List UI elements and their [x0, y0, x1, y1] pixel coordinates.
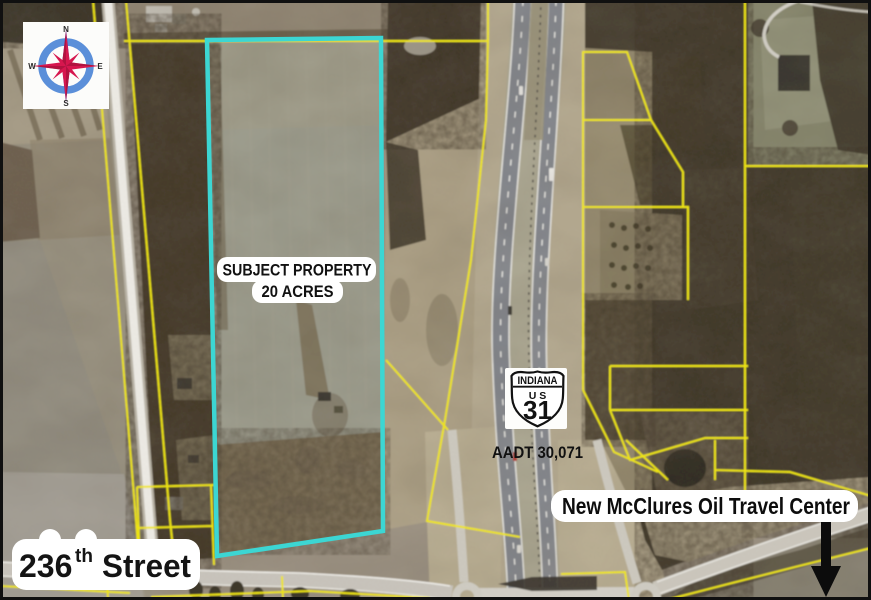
- svg-text:N: N: [63, 25, 69, 34]
- svg-text:20 ACRES: 20 ACRES: [262, 282, 334, 301]
- svg-text:31: 31: [523, 395, 552, 425]
- svg-text:New McClures Oil Travel Center: New McClures Oil Travel Center: [562, 493, 850, 519]
- svg-text:S: S: [63, 99, 69, 108]
- svg-text:INDIANA: INDIANA: [518, 375, 558, 387]
- svg-text:W: W: [28, 62, 36, 71]
- svg-text:E: E: [97, 62, 103, 71]
- svg-text:236: 236: [19, 548, 72, 584]
- svg-text:SUBJECT PROPERTY: SUBJECT PROPERTY: [223, 261, 373, 280]
- svg-text:AADT 30,071: AADT 30,071: [492, 443, 583, 462]
- svg-text:th: th: [75, 546, 93, 567]
- svg-text:Street: Street: [102, 548, 191, 584]
